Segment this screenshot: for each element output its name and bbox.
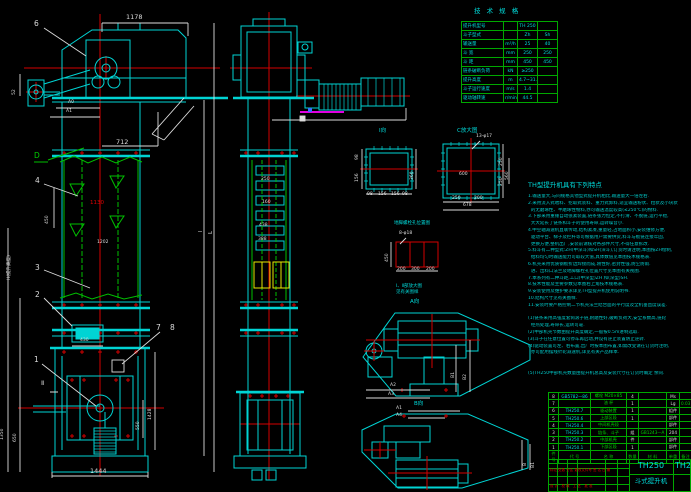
table-cell: 油 杯 bbox=[591, 400, 627, 407]
table-cell: 驱动装置 bbox=[591, 407, 627, 414]
table-row: 8GB5782—86螺栓 M20×854Ms bbox=[549, 393, 691, 400]
spec-table: 提升机型号TH 250斗子型式ZhSh输送量m³/h2540斗 宽mm25025… bbox=[461, 21, 558, 103]
table-cell: TH250.6 bbox=[559, 414, 591, 421]
table-cell: 7 bbox=[549, 400, 559, 407]
balloon-number: 1 bbox=[34, 356, 39, 364]
signature-row: 标记 处数 分区 更改文件号 签 名 日 期 bbox=[550, 469, 610, 473]
table-cell: 组件 bbox=[667, 407, 680, 414]
side-blue-mark bbox=[308, 108, 312, 112]
dim-label: A4 bbox=[396, 414, 402, 419]
table-cell bbox=[639, 414, 667, 421]
note-line: (1)链条采用高强度套筒滚子链,耐磨性好,破断负荷大,安全系数高,链轮 bbox=[528, 316, 691, 323]
table-cell: 中间机壳段 bbox=[591, 422, 627, 429]
dim-label: A0 bbox=[68, 101, 74, 106]
table-cell: 链条破断负荷 bbox=[462, 67, 504, 76]
table-row: 4TH250.4中间机壳段部件 bbox=[549, 422, 691, 429]
title-block: 标记 处数 分区 更改文件号 签 名 日 期 设 计 校 核 工 艺 批 准 T… bbox=[548, 459, 691, 492]
table-cell: TH250.4 bbox=[559, 422, 591, 429]
front-view-drawing bbox=[8, 14, 228, 478]
table-cell: Zh bbox=[518, 31, 538, 40]
dim-label: 156 bbox=[391, 193, 400, 198]
note-line: 亦可配用摆线针轮减速机,详见有关产品样本. bbox=[528, 350, 691, 357]
note-line bbox=[528, 357, 691, 364]
table-row: 5TH250.6上部区段1部件 bbox=[549, 414, 691, 421]
note-line: 2.采用流入式喂料、挖取式装料、重力式卸料,适宜输送粉状、粒状及小块状 bbox=[528, 201, 691, 208]
note-line: 给料均匀时输送能力可取较大值,具体数值见本图技术规格表. bbox=[528, 255, 691, 262]
platform-view-a bbox=[363, 313, 530, 398]
title-block-gridline bbox=[673, 474, 690, 475]
table-cell: 斗子运行速度 bbox=[462, 85, 504, 94]
dim-label: 98 bbox=[367, 193, 373, 198]
table-cell: 件 bbox=[627, 436, 639, 443]
dim-label: 250 bbox=[500, 157, 505, 166]
table-cell: Ms bbox=[667, 393, 680, 400]
table-cell bbox=[680, 414, 691, 421]
table-cell bbox=[538, 85, 558, 94]
note-line: 大大延长了链条和斗子的使用寿命,运转噪音小. bbox=[528, 221, 691, 228]
note-line bbox=[528, 310, 691, 317]
datum-label: D bbox=[34, 152, 40, 160]
table-cell: 提升高度 bbox=[462, 76, 504, 85]
drawing-title: 斗式提升机 bbox=[629, 478, 673, 485]
table-cell bbox=[627, 422, 639, 429]
table-cell: 250 bbox=[518, 49, 538, 58]
table-cell: TH 250 bbox=[518, 22, 538, 31]
table-cell: Sh bbox=[538, 31, 558, 40]
side-centerlines bbox=[230, 12, 410, 480]
balloon-number: 7 bbox=[156, 324, 161, 332]
view-label: Ⅰ向 bbox=[379, 129, 386, 135]
table-row: 输送量m³/h2540 bbox=[462, 40, 558, 49]
table-cell: 44.5 bbox=[518, 94, 538, 103]
note-line: 进、出料口法兰及地脚螺栓孔位置尺寸见本图有关视图. bbox=[528, 269, 691, 276]
dim-label: A3 bbox=[388, 393, 394, 398]
table-cell: mm bbox=[504, 58, 518, 67]
table-cell: 部件 bbox=[667, 436, 680, 443]
table-cell bbox=[639, 444, 667, 451]
table-cell: m/s bbox=[504, 85, 518, 94]
balloon-number: 8 bbox=[170, 324, 175, 332]
dim-label: 52 bbox=[13, 89, 18, 95]
side-casing bbox=[233, 19, 404, 480]
side-buckets bbox=[254, 262, 289, 288]
section-mark: Ⅱ bbox=[41, 380, 44, 387]
dim-label: B2 bbox=[464, 374, 469, 380]
table-cell bbox=[538, 67, 558, 76]
dim-label: 1130 bbox=[90, 201, 104, 207]
dim-label: 450 bbox=[386, 253, 391, 262]
table-cell: 8 bbox=[549, 393, 559, 400]
note-line: 4.中空轴减速机直联传动,结构紧凑,重量轻,占地面积小,安装维修方便, bbox=[528, 228, 691, 235]
dim-label: B1 bbox=[532, 462, 537, 468]
table-row: 斗 宽mm250250 bbox=[462, 49, 558, 58]
dim-label: 200 bbox=[474, 197, 483, 202]
note-line: 7.本系列有二种斗距,工口(中深型)ZH 和(深型)SH. bbox=[528, 276, 691, 283]
note-line: 3.下部采用重锤自动张紧装置,链条张力恒定,不打滑、不脱链,运行平稳, bbox=[528, 214, 691, 221]
front-dimension-lines bbox=[8, 23, 214, 478]
dim-label: B bbox=[524, 463, 529, 466]
dim-label: 450 bbox=[46, 215, 51, 224]
dim-label: 1428 bbox=[149, 409, 154, 420]
table-cell: 450 bbox=[518, 58, 538, 67]
table-cell: 驱动轴转速 bbox=[462, 94, 504, 103]
table-cell bbox=[680, 436, 691, 443]
dim-label: 200 bbox=[397, 268, 406, 273]
table-cell: 1.4 bbox=[518, 85, 538, 94]
dim-label: l bbox=[199, 230, 205, 232]
table-cell: TH250.2 bbox=[559, 436, 591, 443]
table-cell: 1 bbox=[627, 400, 639, 407]
table-cell: 中部机壳 bbox=[591, 436, 627, 443]
balloon-number: 4 bbox=[35, 177, 40, 185]
table-cell bbox=[559, 400, 591, 407]
table-cell bbox=[680, 444, 691, 451]
dim-label: 1444 bbox=[90, 468, 107, 475]
table-cell: 上部区段 bbox=[591, 414, 627, 421]
table-cell bbox=[538, 22, 558, 31]
title-block-gridline bbox=[629, 474, 673, 475]
note-line: 驱动平台、梯子及栏杆等可根据用户需要供货,料斗与板链连接牢固, bbox=[528, 235, 691, 242]
title-block-gridline bbox=[605, 460, 606, 491]
table-cell: m³/h bbox=[504, 40, 518, 49]
table-cell: 250 bbox=[538, 49, 558, 58]
dim-label: 650 bbox=[14, 433, 19, 442]
spec-table-title: 技 术 规 格 bbox=[474, 8, 520, 15]
table-cell: 1 bbox=[549, 444, 559, 451]
table-cell: 6 bbox=[549, 407, 559, 414]
table-cell: 提升机型号 bbox=[462, 22, 504, 31]
table-cell: 3 bbox=[549, 429, 559, 436]
table-cell: 450 bbox=[538, 58, 558, 67]
table-cell: TH250.3 bbox=[559, 429, 591, 436]
dim-label: 712 bbox=[116, 139, 128, 146]
table-cell: TH250.7 bbox=[559, 407, 591, 414]
table-cell bbox=[639, 393, 667, 400]
table-row: 7油 杯1Lg0.03 bbox=[549, 400, 691, 407]
note-line: 经热处理,寿命长,运转可靠. bbox=[528, 323, 691, 330]
sheet-number: TH2 bbox=[675, 462, 691, 470]
height-note-label: H(提升高度) bbox=[8, 255, 13, 280]
table-cell: 输送量 bbox=[462, 40, 504, 49]
dim-label: 98 bbox=[356, 154, 361, 160]
table-cell bbox=[680, 422, 691, 429]
side-view-drawing bbox=[230, 12, 410, 480]
note-text: Ⅰ、Ⅱ部放大图 bbox=[396, 285, 422, 290]
note-line: (4)驱动装置可左、右布置,出厂时按本图布置,如需改变请在订货时注明, bbox=[528, 344, 691, 351]
table-cell: m bbox=[504, 76, 518, 85]
signature-row: 设 计 校 核 工 艺 批 准 bbox=[550, 485, 592, 489]
table-cell: 25 bbox=[518, 40, 538, 49]
table-cell: 链条、斗子 bbox=[591, 429, 627, 436]
detail-title: 地脚螺栓孔位置图 bbox=[394, 222, 430, 227]
features-title: TH型提升机具有下列特点 bbox=[528, 182, 602, 189]
flange-detail-i bbox=[360, 146, 418, 194]
table-cell bbox=[639, 422, 667, 429]
table-cell: 4 bbox=[549, 422, 559, 429]
front-centerlines bbox=[18, 14, 220, 476]
table-cell: r/min bbox=[504, 94, 518, 103]
dim-label: 600 bbox=[459, 173, 468, 178]
dim-label: 250 bbox=[261, 178, 270, 183]
table-row: 提升高度m4.7~31.7 bbox=[462, 76, 558, 85]
dim-label: 300 bbox=[411, 268, 420, 273]
note-line: (2)中部机壳节数由提升高度确定,一般按0.5m进制选取. bbox=[528, 330, 691, 337]
table-row: 3TH250.3链条、斗子组GB1243—A204 bbox=[549, 429, 691, 436]
table-cell bbox=[504, 31, 518, 40]
dim-label: 98 bbox=[402, 193, 408, 198]
dim-label: 200 bbox=[426, 268, 435, 273]
dim-label: 550 bbox=[137, 421, 142, 430]
balloon-number: 2 bbox=[35, 291, 40, 299]
table-cell: TH250.1 bbox=[559, 444, 591, 451]
dim-label: 250 bbox=[452, 197, 461, 202]
note-line: 10.结构尺寸见有关图样. bbox=[528, 296, 691, 303]
dim-label: B1 bbox=[452, 372, 457, 378]
note-text: 见有关图样 bbox=[396, 291, 419, 296]
note-line: (5)TH250中部机壳数量由提升机总高及安装尺寸在订货时确定 余同. bbox=[528, 371, 691, 378]
table-cell bbox=[639, 436, 667, 443]
dim-label: 1202 bbox=[97, 241, 108, 246]
dim-label: 1178 bbox=[126, 14, 143, 21]
dim-label: A1 bbox=[66, 110, 72, 115]
table-cell: 5 bbox=[549, 414, 559, 421]
dim-label: 560 bbox=[506, 171, 511, 180]
balloon-number: 3 bbox=[35, 264, 40, 272]
table-cell: 组 bbox=[627, 429, 639, 436]
table-cell: ≥250 bbox=[518, 67, 538, 76]
dim-label: 156 bbox=[356, 173, 361, 182]
table-cell: GB1243—A bbox=[639, 429, 667, 436]
table-cell: 斗 宽 bbox=[462, 49, 504, 58]
dim-label: 678 bbox=[463, 204, 472, 209]
table-cell bbox=[680, 407, 691, 414]
table-cell bbox=[680, 393, 691, 400]
dim-label: A1 bbox=[396, 407, 402, 412]
dim-label: 430 bbox=[80, 339, 89, 344]
table-cell: 1 bbox=[627, 407, 639, 414]
note-line bbox=[528, 364, 691, 371]
table-row: 提升机型号TH 250 bbox=[462, 22, 558, 31]
table-cell: 4.7~31.7 bbox=[518, 76, 538, 85]
table-cell: Lg bbox=[667, 400, 680, 407]
table-cell: 4 bbox=[627, 393, 639, 400]
table-cell: 2 bbox=[549, 436, 559, 443]
table-cell: 螺栓 M20×85 bbox=[591, 393, 627, 400]
note-line: 9.安装使用及维护要求详见TH型提升机使用说明书. bbox=[528, 289, 691, 296]
features-notes: 1.输送量大,与同规格其他型式提升机相比,输送量大一倍左右.2.采用流入式喂料、… bbox=[528, 194, 691, 378]
bom-table: 8GB5782—86螺栓 M20×854Ms7油 杯1Lg0.036TH250.… bbox=[548, 392, 691, 464]
title-block-gridline bbox=[617, 460, 618, 491]
table-cell: 部件 bbox=[667, 444, 680, 451]
hole-callout: 13-φ17 bbox=[476, 135, 492, 140]
note-line: 6.机壳采用优质钢板折边焊接而成,刚性好,密封性强,防尘防雨. bbox=[528, 262, 691, 269]
note-line: (3)斗子在任意位置可停车再启动,并设有逆止装置防止逆转. bbox=[528, 337, 691, 344]
table-row: 驱动轴转速r/min44.5 bbox=[462, 94, 558, 103]
view-label: A向 bbox=[410, 300, 419, 306]
note-line: 8.技术性能及主要参数见本图右上角技术规格表. bbox=[528, 282, 691, 289]
table-cell: 1 bbox=[627, 414, 639, 421]
table-row: 斗子型式ZhSh bbox=[462, 31, 558, 40]
view-label: B向 bbox=[414, 402, 423, 408]
note-line: 更换方便,整机出厂,安装前请核对各部件尺寸,不得任意拆改. bbox=[528, 242, 691, 249]
table-row: 斗子运行速度m/s1.4 bbox=[462, 85, 558, 94]
platform-view-b bbox=[362, 411, 530, 490]
table-cell bbox=[504, 22, 518, 31]
dim-label: 156 bbox=[378, 193, 387, 198]
table-cell: 斗 距 bbox=[462, 58, 504, 67]
balloon-number: 6 bbox=[34, 20, 39, 28]
table-cell bbox=[538, 94, 558, 103]
dim-label: 250 bbox=[500, 177, 505, 186]
table-cell: 斗子型式 bbox=[462, 31, 504, 40]
front-casing bbox=[28, 23, 228, 472]
table-cell: 0.03 bbox=[680, 400, 691, 407]
table-row: 斗 距mm450450 bbox=[462, 58, 558, 67]
dim-label: 360 bbox=[411, 171, 416, 180]
table-row: 6TH250.7驱动装置1组件 bbox=[549, 407, 691, 414]
note-line: 1.输送量大,与同规格其他型式提升机相比,输送量大一倍左右. bbox=[528, 194, 691, 201]
table-row: 2TH250.2中部机壳件部件 bbox=[549, 436, 691, 443]
table-cell: GB5782—86 bbox=[559, 393, 591, 400]
table-cell: mm bbox=[504, 49, 518, 58]
table-cell: 部件 bbox=[667, 422, 680, 429]
table-row: 链条破断负荷kN≥250 bbox=[462, 67, 558, 76]
flange-detail-c bbox=[437, 138, 509, 210]
title-block-divider bbox=[673, 460, 674, 491]
note-line: 11.安装时要严格控制二节机壳法兰结合面的平行度及全机垂直度误差. bbox=[528, 303, 691, 310]
table-cell: 204 bbox=[667, 429, 680, 436]
table-cell bbox=[639, 400, 667, 407]
table-cell bbox=[538, 76, 558, 85]
dim-label: 388 bbox=[258, 238, 267, 243]
table-cell: 40 bbox=[538, 40, 558, 49]
drawing-number: TH250 bbox=[629, 462, 673, 470]
table-cell bbox=[639, 407, 667, 414]
table-cell: 下部区段 bbox=[591, 444, 627, 451]
dim-label: 160 bbox=[262, 201, 271, 206]
table-cell bbox=[680, 429, 691, 436]
table-cell: kN bbox=[504, 67, 518, 76]
view-label: C放大图 bbox=[457, 129, 477, 135]
dim-label: A2 bbox=[390, 384, 396, 389]
table-cell: 1 bbox=[627, 444, 639, 451]
dim-label: L bbox=[209, 231, 215, 234]
table-row: 1TH250.1下部区段1部件 bbox=[549, 444, 691, 451]
dim-label: 438 bbox=[259, 224, 268, 229]
hole-callout: 8-φ18 bbox=[399, 232, 412, 237]
note-line: 5.料斗有二种型式:ZH(中深斗)和SH(深斗),订货时请注明,本图按ZH绘制, bbox=[528, 248, 691, 255]
dim-label: 1350 bbox=[1, 429, 6, 440]
table-cell: 部件 bbox=[667, 414, 680, 421]
note-line: 的无磨琢性、半磨琢性物料,亦可输送温度较高(≤250℃)的物料. bbox=[528, 208, 691, 215]
